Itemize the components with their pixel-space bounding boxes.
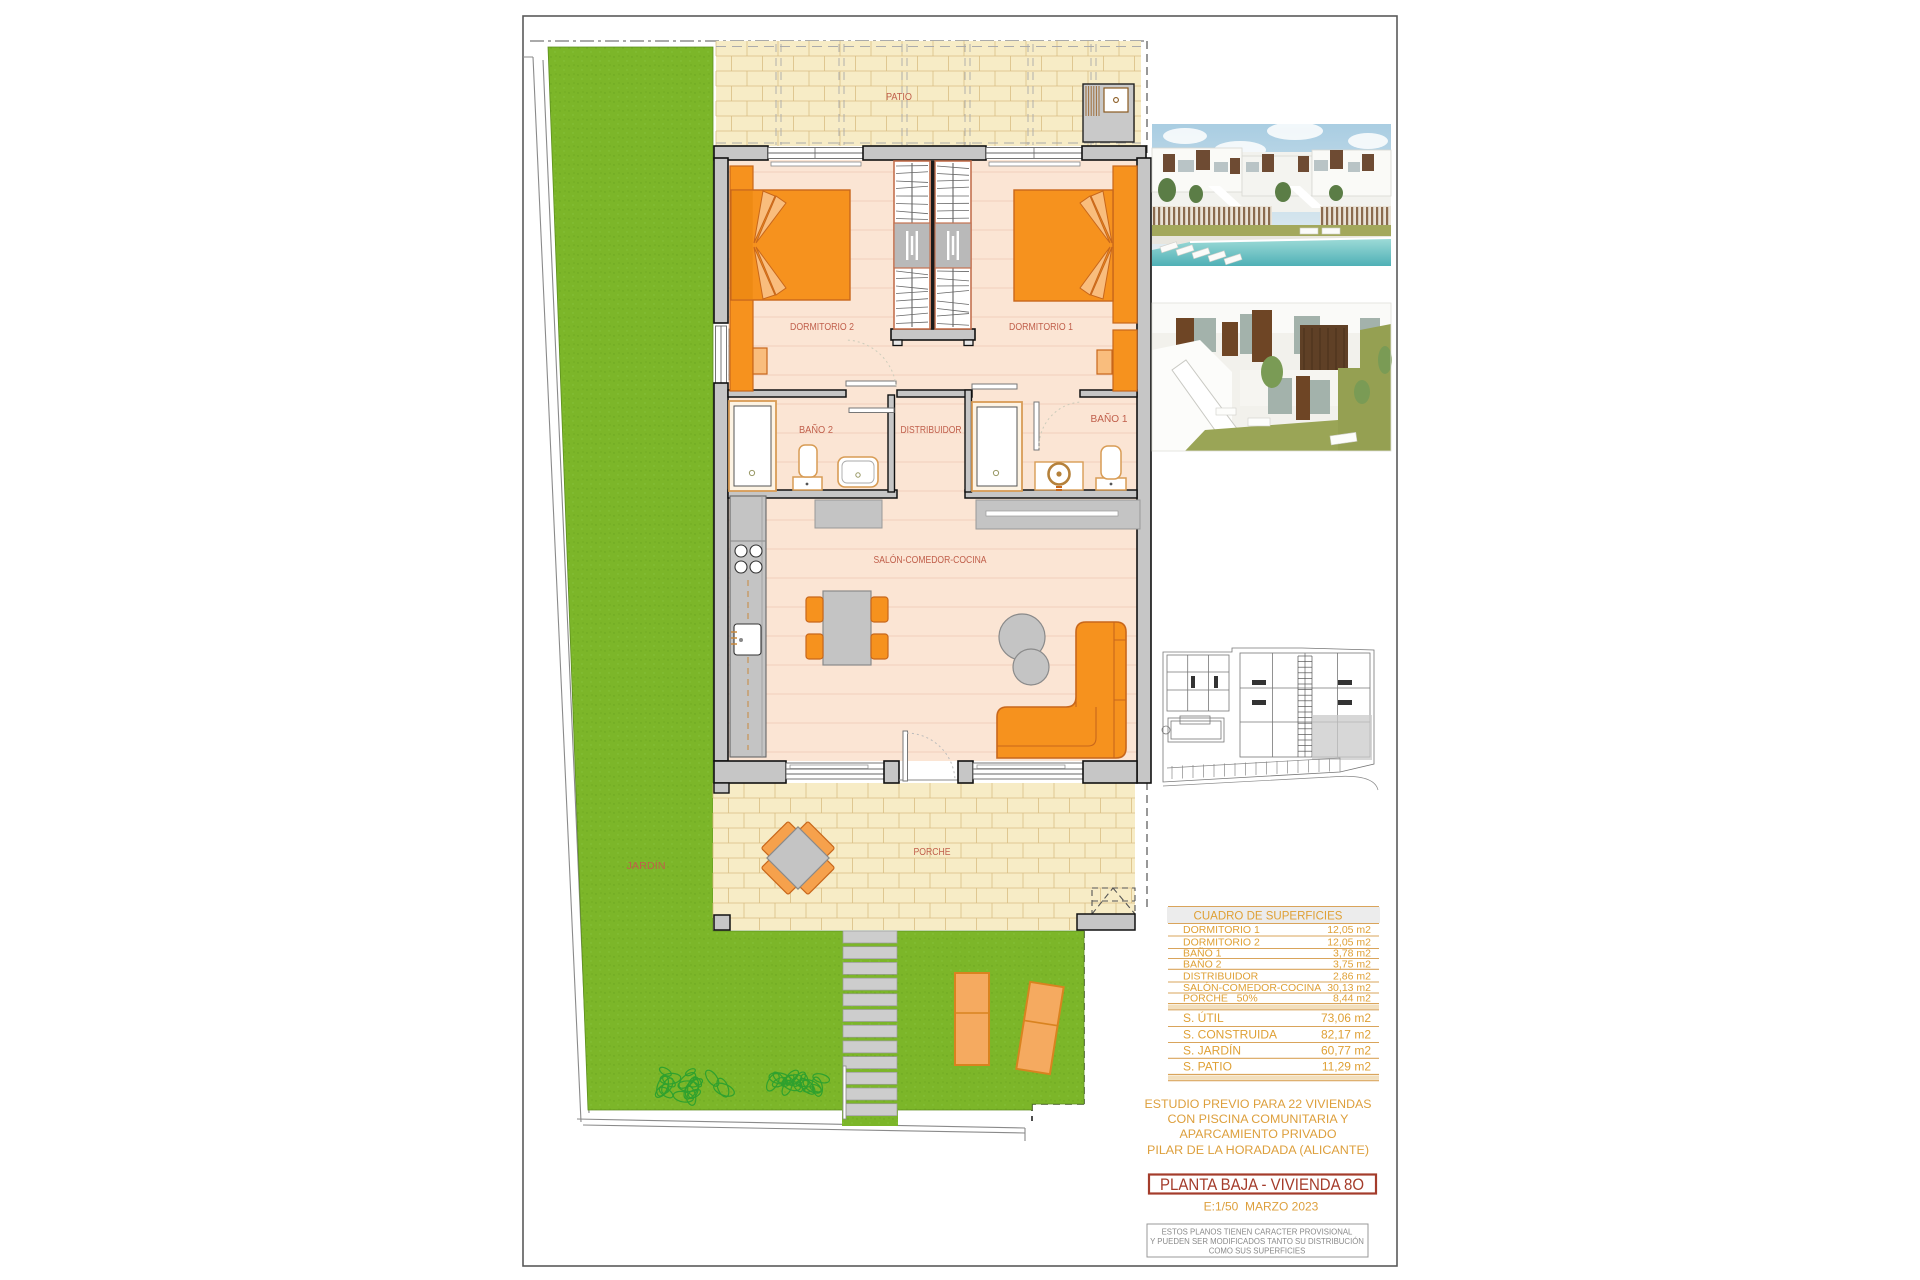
svg-text:ESTOS PLANOS TIENEN CARACTER P: ESTOS PLANOS TIENEN CARACTER PROVISIONAL (1162, 1228, 1353, 1237)
svg-text:82,17 m2: 82,17 m2 (1321, 1028, 1371, 1042)
svg-text:SALÓN-COMEDOR-COCINA: SALÓN-COMEDOR-COCINA (874, 553, 987, 566)
svg-text:DORMITORIO 1: DORMITORIO 1 (1009, 321, 1073, 333)
svg-text:APARCAMIENTO PRIVADO: APARCAMIENTO PRIVADO (1180, 1127, 1337, 1141)
svg-text:CUADRO DE SUPERFICIES: CUADRO DE SUPERFICIES (1194, 911, 1343, 923)
svg-text:E:1/50 MARZO 2023: E:1/50 MARZO 2023 (1204, 1200, 1319, 1214)
svg-text:S. CONSTRUIDA: S. CONSTRUIDA (1183, 1028, 1277, 1042)
svg-text:JARDÍN: JARDÍN (627, 859, 666, 872)
svg-text:BAÑO 1: BAÑO 1 (1091, 412, 1128, 425)
svg-text:COMO SUS SUPERFICIES: COMO SUS SUPERFICIES (1209, 1247, 1306, 1256)
svg-text:60,77 m2: 60,77 m2 (1321, 1044, 1371, 1058)
svg-text:ESTUDIO PREVIO PARA 22 VIVIEND: ESTUDIO PREVIO PARA 22 VIVIENDAS (1145, 1097, 1372, 1111)
svg-text:DORMITORIO 1: DORMITORIO 1 (1183, 924, 1260, 936)
svg-text:DISTRIBUIDOR: DISTRIBUIDOR (901, 424, 962, 436)
svg-text:PORCHE: PORCHE (914, 846, 951, 858)
svg-text:PATIO: PATIO (886, 91, 912, 103)
svg-text:S. JARDÍN: S. JARDÍN (1183, 1043, 1241, 1058)
svg-text:73,06 m2: 73,06 m2 (1321, 1011, 1371, 1025)
svg-text:S. ÚTIL: S. ÚTIL (1183, 1010, 1224, 1025)
svg-text:12,05 m2: 12,05 m2 (1327, 924, 1371, 936)
svg-text:S. PATIO: S. PATIO (1183, 1060, 1232, 1074)
svg-text:3,75 m2: 3,75 m2 (1333, 958, 1371, 970)
svg-text:PORCHE 50%: PORCHE 50% (1183, 993, 1258, 1005)
svg-text:PILAR DE LA HORADADA (ALICANTE: PILAR DE LA HORADADA (ALICANTE) (1147, 1143, 1369, 1157)
svg-text:DISTRIBUIDOR: DISTRIBUIDOR (1183, 971, 1259, 983)
svg-text:Y PUEDEN SER MODIFICADOS TANTO: Y PUEDEN SER MODIFICADOS TANTO SU DISTRI… (1150, 1237, 1364, 1246)
svg-text:DORMITORIO 2: DORMITORIO 2 (790, 321, 854, 333)
svg-text:8,44 m2: 8,44 m2 (1333, 993, 1371, 1005)
svg-text:PLANTA BAJA - VIVIENDA 8O: PLANTA BAJA - VIVIENDA 8O (1160, 1176, 1364, 1194)
svg-text:BAÑO 2: BAÑO 2 (799, 423, 833, 436)
svg-text:BAÑO 2: BAÑO 2 (1183, 957, 1222, 970)
svg-text:CON PISCINA COMUNITARIA Y: CON PISCINA COMUNITARIA Y (1168, 1112, 1349, 1126)
svg-text:11,29 m2: 11,29 m2 (1322, 1060, 1371, 1074)
svg-text:2,86 m2: 2,86 m2 (1333, 971, 1371, 983)
